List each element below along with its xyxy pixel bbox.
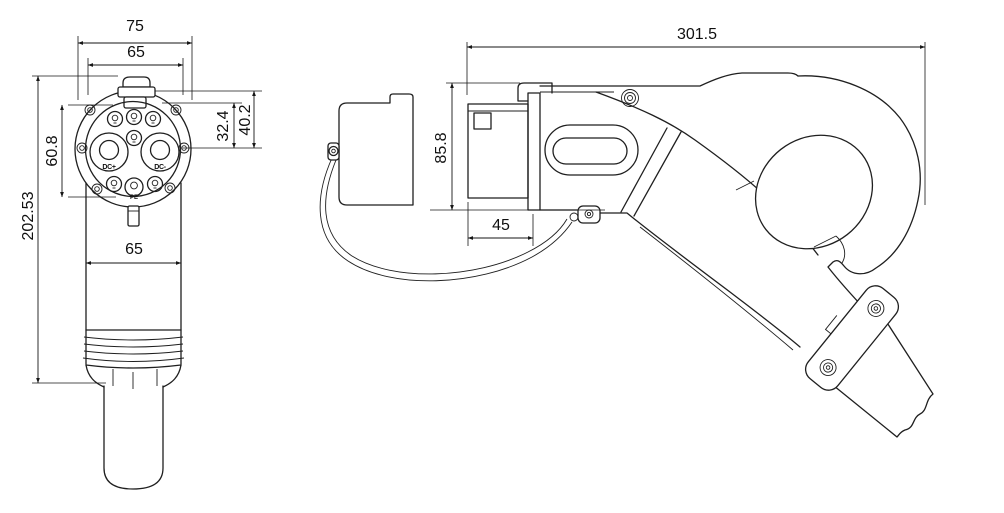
nozzle-section: [468, 83, 552, 210]
hand-opening: [733, 112, 896, 272]
dc-plus-label: DC+: [102, 164, 116, 171]
dim-text: 202.53: [20, 191, 37, 240]
dim-text: 40.2: [237, 104, 254, 135]
cord-eyelet: [570, 213, 578, 221]
ring-handle: [733, 76, 921, 322]
side-panel: [545, 125, 638, 175]
side-view: 301.5 85.8 45: [320, 26, 933, 437]
screw-icon: [622, 90, 639, 107]
dim-text: 32.4: [215, 110, 232, 141]
dim-text: 45: [492, 217, 510, 234]
dim-text: 85.8: [433, 132, 450, 163]
dim-text: 75: [126, 18, 144, 35]
dust-cap: [328, 94, 413, 205]
cord-anchor: [570, 206, 600, 223]
dc-minus-label: DC-: [154, 164, 167, 171]
dim-face-height: 85.8: [430, 83, 605, 210]
bottom-key-tab: [128, 206, 139, 226]
screw-icon: [329, 147, 338, 156]
front-view: DC+ DC- PE 75 65: [20, 18, 262, 489]
pe-label: PE: [130, 195, 138, 201]
dim-text: 65: [127, 44, 145, 61]
drawing-sheet: DC+ DC- PE 75 65: [0, 0, 1004, 513]
dim-body-width: 65: [86, 241, 181, 263]
side-slot: [553, 138, 627, 164]
cable-front: [104, 386, 163, 489]
dim-text: 301.5: [677, 26, 717, 43]
dim-nozzle-depth: 45: [468, 202, 533, 246]
dim-text: 65: [125, 241, 143, 258]
technical-drawing-canvas: DC+ DC- PE 75 65: [0, 0, 1004, 513]
dim-text: 60.8: [44, 135, 61, 166]
